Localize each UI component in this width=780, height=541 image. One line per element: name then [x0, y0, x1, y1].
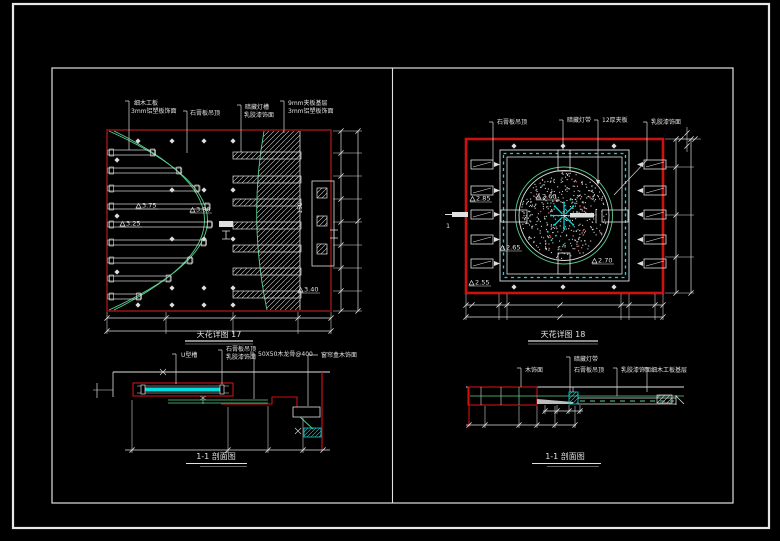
material-label: 乳胶漆饰面: [226, 353, 256, 361]
material-label: 石膏板吊顶: [497, 118, 527, 126]
left-plan-title: 天花详图 17: [197, 329, 242, 339]
hatched-beam: [233, 291, 301, 298]
blocking-hatched: [657, 395, 672, 403]
elevation-value: 3.75: [142, 202, 156, 210]
elevation-value: 3.25: [126, 220, 140, 228]
left-section-title: 1-1 剖面图: [196, 451, 236, 461]
legend-cell: [317, 188, 327, 198]
right-section-title: 1-1 剖面图: [545, 451, 585, 461]
material-label: 木饰面: [525, 366, 543, 374]
material-label: 9mm夹板基层: [288, 99, 328, 107]
section-flag: [452, 212, 468, 217]
cove-light-hatched: [569, 392, 578, 404]
material-label: 细木工板基层: [651, 366, 687, 374]
material-label: 细木工板: [134, 99, 158, 107]
hatched-beam: [233, 199, 301, 206]
elevation-value: 2.65: [506, 244, 520, 252]
material-label: 石膏板吊顶: [226, 345, 256, 353]
material-label: 乳胶漆饰面: [621, 366, 651, 374]
material-label: 乳胶漆饰面: [651, 118, 681, 126]
elevation-value: 2.70: [598, 257, 612, 265]
tube-endcap: [220, 385, 224, 394]
center-dim-bar: [570, 213, 594, 218]
light-fixture: [219, 221, 233, 227]
curtain-rail-hatched: [304, 428, 321, 437]
elevation-value: 3.80: [196, 206, 210, 214]
hatched-beam: [233, 152, 301, 159]
elevation-value: 2.55: [475, 279, 489, 287]
material-label: 窗帘盒木饰面: [321, 351, 357, 359]
material-label: 暗藏灯带: [574, 355, 598, 363]
hatched-beam: [233, 245, 301, 252]
section-number: 1: [446, 222, 450, 230]
material-label: 暗藏灯带: [567, 116, 591, 124]
material-label: 3mm铝塑板饰面: [131, 107, 177, 115]
material-label: 石膏板吊顶: [574, 366, 604, 374]
hatched-beam: [233, 222, 301, 229]
material-label: 暗藏灯槽: [245, 103, 269, 111]
material-label: U型槽: [181, 351, 197, 359]
legend-cell: [317, 244, 327, 254]
cad-canvas: 细木工板 3mm铝塑板饰面 石膏板吊顶 暗藏灯槽 乳胶漆饰面 9mm夹板基层 3…: [0, 0, 780, 541]
elevation-value: 3.40: [304, 286, 318, 294]
material-label: 3mm铝塑板饰面: [288, 107, 334, 115]
elevation-value: 2.60: [542, 193, 556, 201]
material-label: 乳胶漆饰面: [244, 111, 274, 119]
right-plan-title: 天花详图 18: [541, 329, 586, 339]
fluorescent-tube: [144, 388, 220, 392]
hatched-beam: [233, 176, 301, 183]
dim-note-150: 150: [297, 202, 304, 214]
material-label: 石膏板吊顶: [190, 109, 220, 117]
material-label: 12厚夹板: [602, 116, 628, 124]
tube-endcap: [141, 385, 145, 394]
cad-drawing-sheet: 细木工板 3mm铝塑板饰面 石膏板吊顶 暗藏灯槽 乳胶漆饰面 9mm夹板基层 3…: [0, 0, 780, 541]
hatched-beam: [233, 268, 301, 275]
legend-cell: [317, 216, 327, 226]
material-label: 50X50木龙骨@400: [258, 350, 313, 358]
elevation-value: 2.85: [476, 195, 490, 203]
